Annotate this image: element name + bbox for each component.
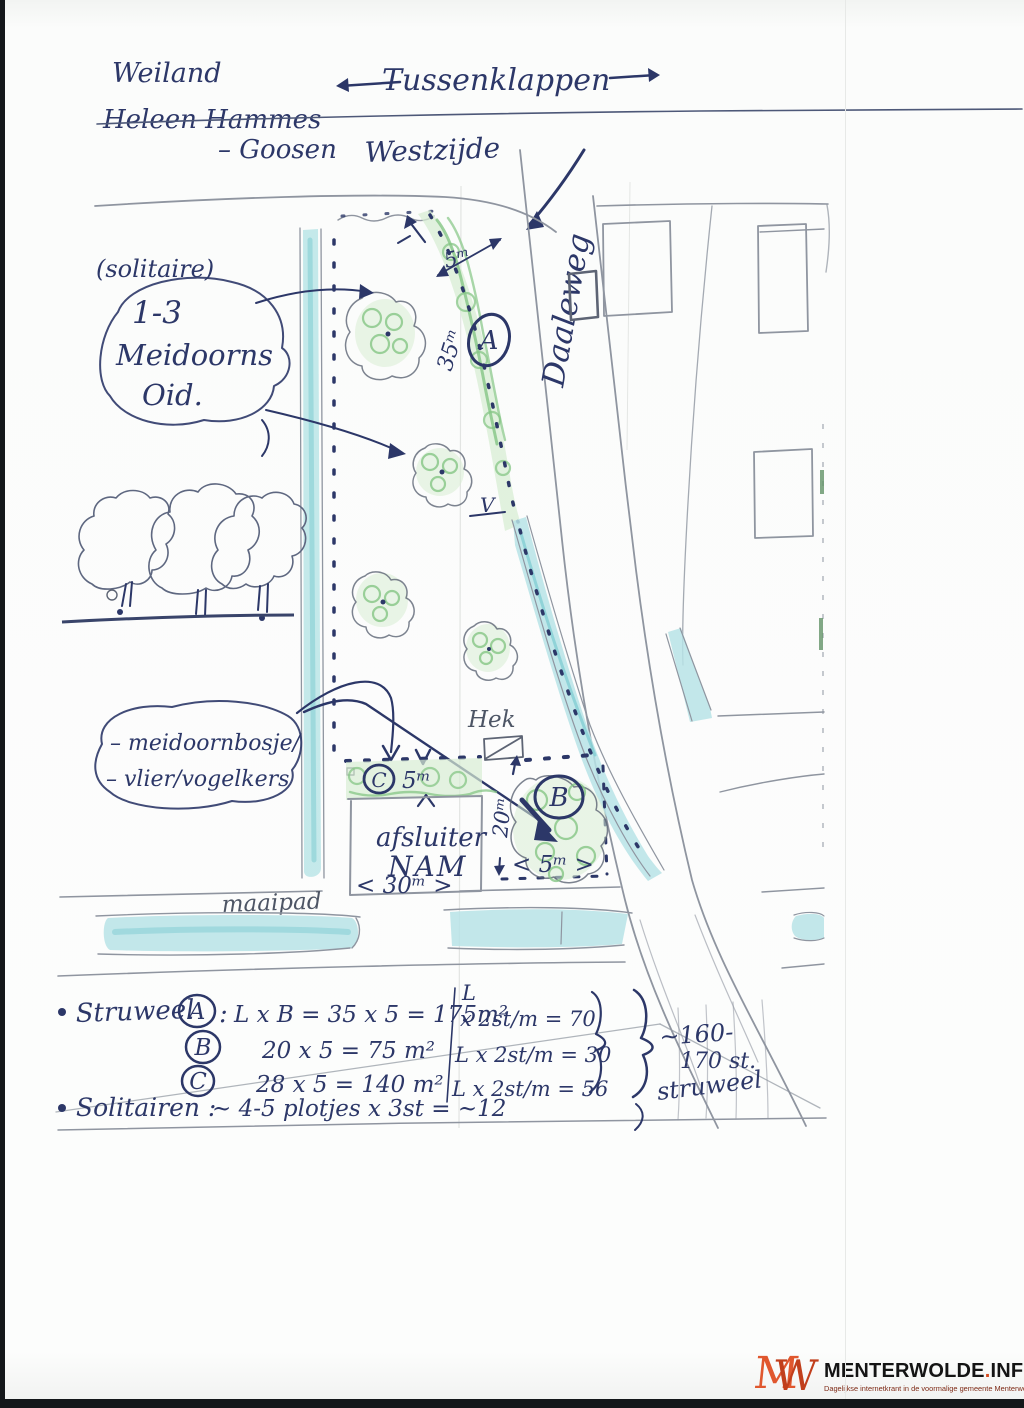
header-labels: Weiland Heleen Hammes – Goosen Tussenkla…: [97, 58, 1022, 230]
arrow-down-small-icon: [494, 858, 505, 876]
afsluiter-label-1: afsluiter: [376, 823, 488, 853]
building-outline: [758, 224, 808, 333]
building-outline: [603, 221, 672, 316]
blue-patch: [792, 914, 824, 940]
shrub-blob-2: [413, 444, 472, 507]
building-outline: [754, 449, 813, 538]
bubble-meidoorns: (solitaire) 1-3 Meidoorns Oid.: [96, 255, 406, 459]
calc-formula-b: 20 x 5 = 75 m²: [261, 1038, 435, 1064]
scanned-sketch-page: Weiland Heleen Hammes – Goosen Tussenkla…: [0, 0, 1024, 1408]
strip-b-length-label: 20ᵐ: [488, 797, 516, 840]
shrub-blob-1: [346, 292, 426, 379]
calc-unit-a: x 2st/m = 70: [460, 1007, 596, 1031]
bullet-icon: [58, 1104, 66, 1112]
arrow-up-icon: [398, 215, 425, 243]
shrub-blob-3: [352, 572, 414, 638]
marker-c-label: C: [371, 768, 386, 792]
nam-enclosure: afsluiter NAM < 30ᵐ >: [348, 796, 488, 899]
tree-trunk: [258, 584, 268, 612]
solitaire-note: (solitaire): [96, 255, 214, 283]
calc-unit-top-a: L: [461, 981, 476, 1005]
ditch-strip: [450, 909, 628, 947]
watermark-text: MENTERWOLDE.INFO Dagelijkse internetkran…: [824, 1360, 1024, 1393]
place-name: Tussenklappen: [382, 63, 610, 98]
calc-marker-a: A: [187, 999, 206, 1025]
calculations-block: Struweel A : L x B = 35 x 5 = 175m² L x …: [58, 981, 763, 1130]
brace-big: [633, 990, 653, 1097]
site-name-main: MENTERWOLDE: [824, 1360, 985, 1382]
bullet-icon: [58, 1008, 66, 1016]
strip-a-length-label: 35ᵐ: [433, 327, 469, 374]
calc-marker-c: C: [189, 1069, 207, 1095]
gate-label: Hek: [467, 707, 516, 733]
owner-name-suffix: – Goosen: [218, 135, 337, 165]
bubble2-line2: – vlier/vogelkers: [106, 767, 289, 792]
solitaire-trees-sketch: [62, 484, 306, 622]
solitairen-formula: ~ 4-5 plotjes x 3st = ~12: [212, 1096, 506, 1122]
calc-colon: :: [219, 999, 228, 1029]
total-line1: ~160-: [658, 1018, 734, 1051]
nam-width-label: < 30ᵐ >: [356, 873, 453, 899]
marker-a-label: A: [478, 326, 499, 356]
field-label: Weiland: [112, 58, 222, 89]
calc-formula-c: 28 x 5 = 140 m²: [255, 1072, 444, 1098]
bubble1-line3: Oid.: [142, 378, 203, 412]
brace-tail: [635, 1104, 643, 1130]
shrub-blob-4: [464, 622, 517, 680]
paper-edge-line: [845, 0, 846, 1408]
ditch-right-of-road: [666, 628, 824, 941]
site-tagline: Dagelijkse internetkrant in de voormalig…: [824, 1384, 1024, 1393]
bubble1-line1: 1-3: [132, 295, 182, 331]
logo-letter-w: W: [771, 1351, 819, 1400]
site-name: MENTERWOLDE.INFO: [824, 1360, 1024, 1383]
mw-logo: M W: [752, 1348, 822, 1400]
bubble2-line1: – meidoornbosje/: [110, 731, 303, 756]
buildings: [569, 221, 813, 538]
scan-edge-bottom: [0, 1399, 1024, 1408]
site-watermark: M W MENTERWOLDE.INFO Dagelijkse internet…: [752, 1352, 1020, 1402]
bubble1-line2: Meidoorns: [115, 338, 273, 372]
calc-unit-b: L x 2st/m = 30: [454, 1043, 611, 1067]
paper-fold-lines: [459, 182, 823, 1128]
bubble1-arrow-to-blob2: [266, 410, 406, 459]
total-line3: struweel: [655, 1065, 763, 1106]
scan-edge-left: [0, 0, 5, 1408]
marker-b-label: B: [548, 783, 568, 813]
side-label: Westzijde: [364, 131, 501, 169]
site-name-tld: INFO: [990, 1360, 1024, 1382]
sketch-canvas: Weiland Heleen Hammes – Goosen Tussenkla…: [0, 0, 1024, 1408]
tree-crown: [78, 491, 174, 590]
solitairen-label: Solitairen :: [76, 1093, 216, 1122]
tree-crown: [212, 492, 307, 588]
ditch-left: [300, 228, 334, 878]
arrow-right-icon: [610, 68, 660, 82]
tree-trunk: [196, 590, 206, 616]
strip-b-width-label: < 5ᵐ >: [512, 852, 594, 878]
road-name-label: Daaleweg: [535, 231, 598, 391]
calc-marker-b: B: [194, 1035, 212, 1061]
strip-c-width-label: 5ᵐ: [402, 768, 431, 794]
struweel-label: Struweel: [75, 995, 195, 1029]
